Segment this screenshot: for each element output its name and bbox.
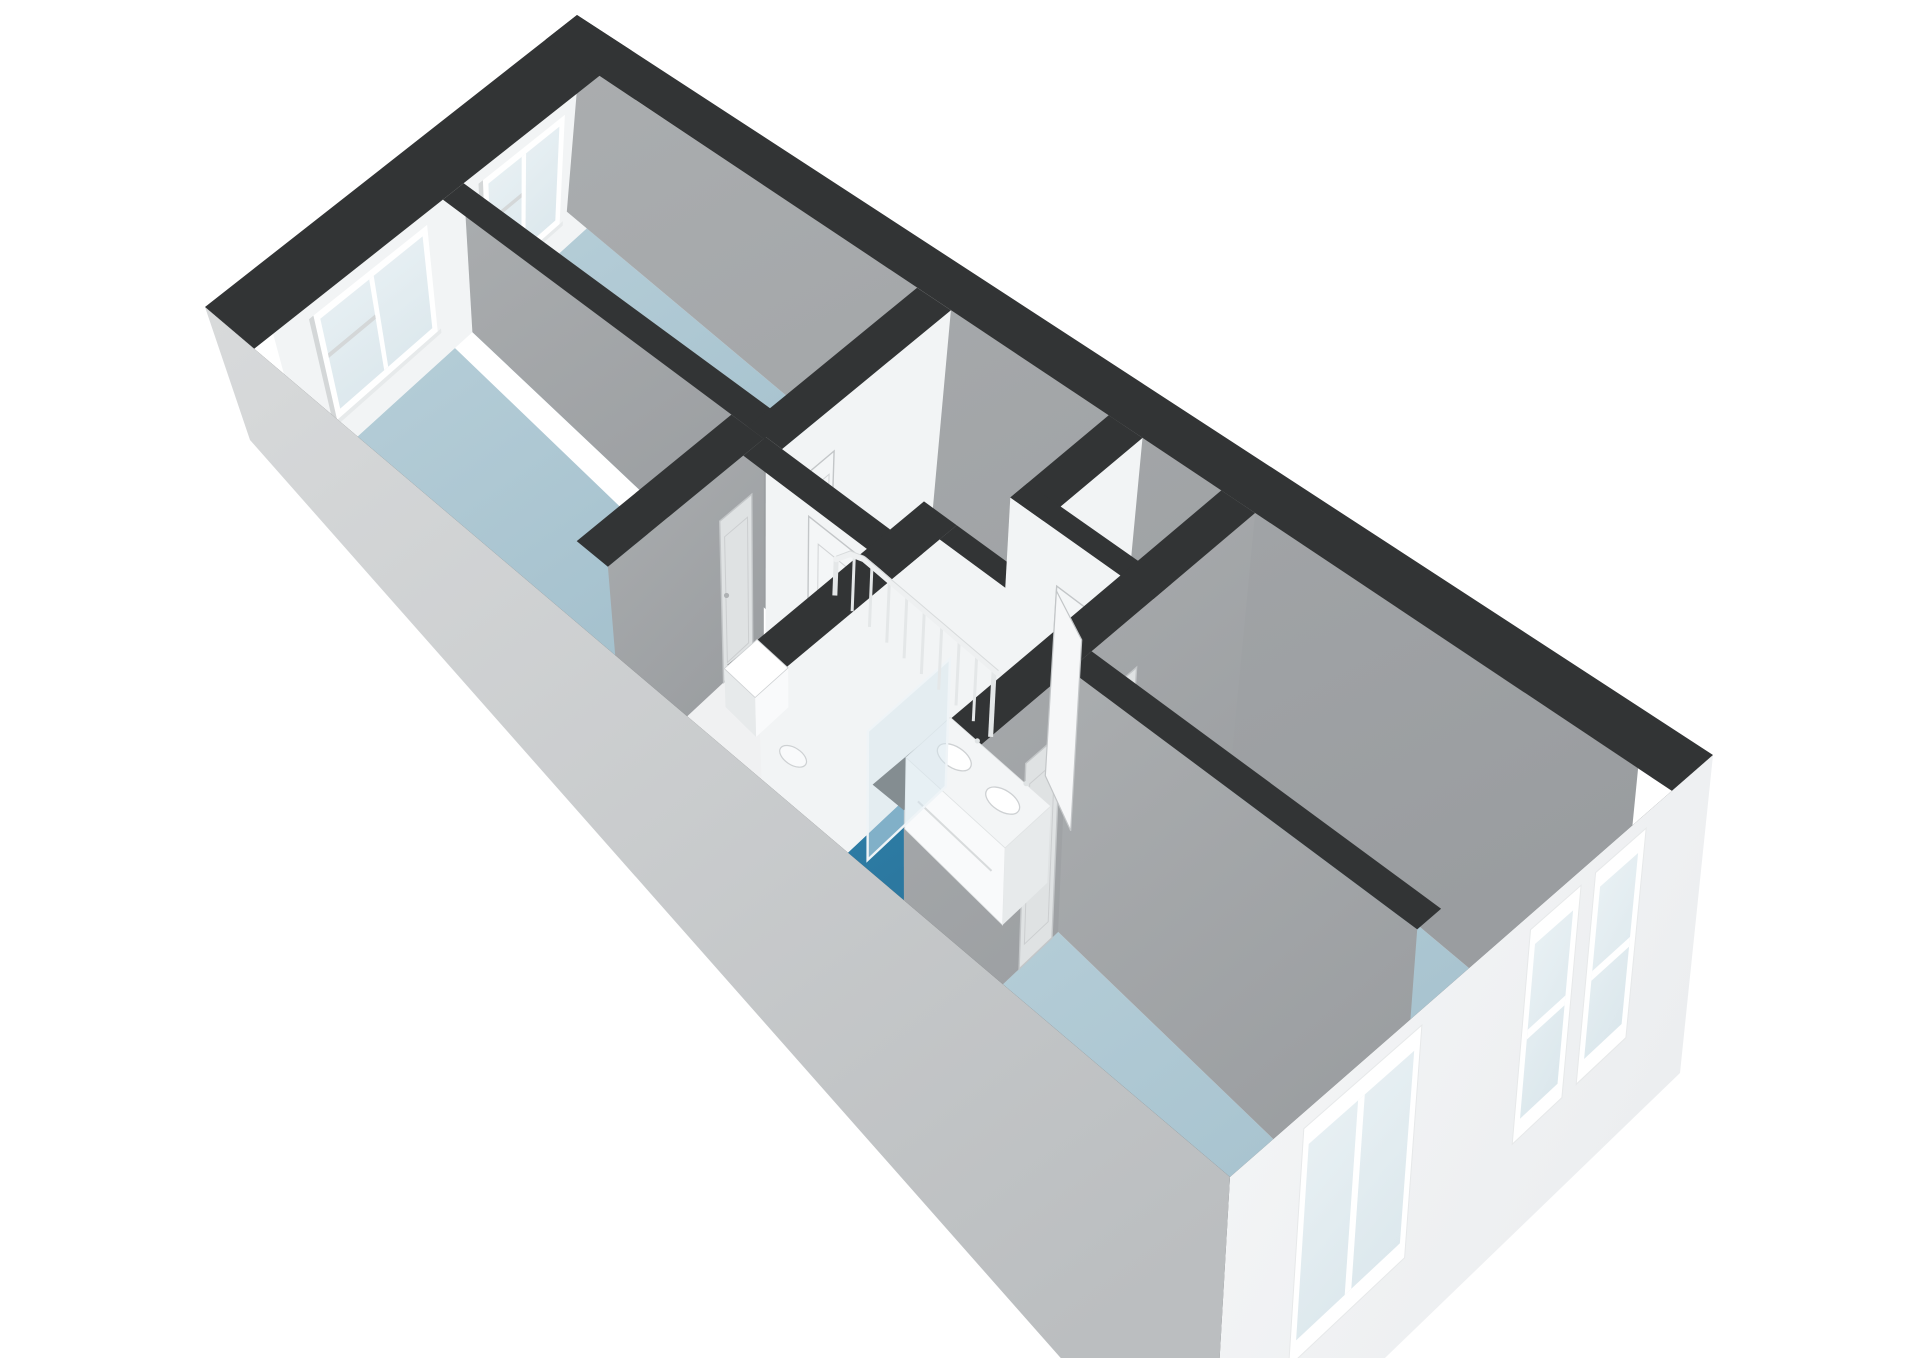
vanity-faucet [975, 738, 980, 743]
vanity-faucet [1023, 781, 1028, 786]
door-handle [724, 593, 729, 598]
railing-baluster [835, 559, 836, 595]
floor-plan-stage [0, 0, 1920, 1358]
floor-plan-3d-render [0, 0, 1920, 1358]
railing-baluster [991, 670, 995, 737]
